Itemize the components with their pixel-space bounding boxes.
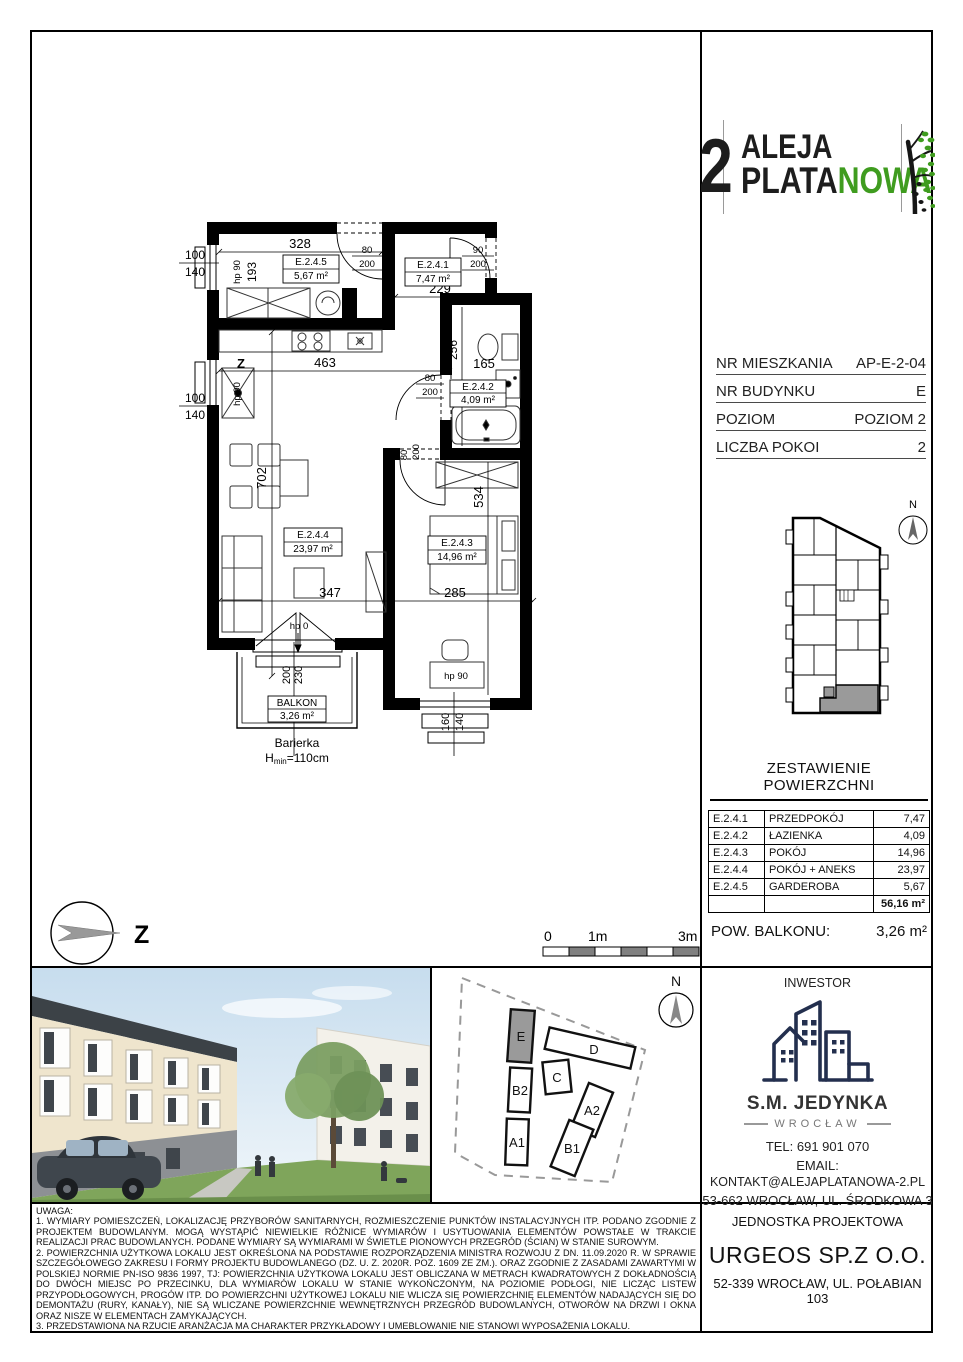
svg-text:100: 100: [185, 248, 205, 262]
svg-text:14,96 m²: 14,96 m²: [437, 552, 477, 563]
svg-text:E.2.4.3: E.2.4.3: [441, 538, 473, 549]
table-row: E.2.4.3 POKÓJ 14,96: [709, 845, 930, 862]
table-row: E.2.4.4 POKÓJ + ANEKS 23,97: [709, 862, 930, 879]
design-unit-address: 52-339 WROCŁAW, UL. POŁABIAN 103: [702, 1276, 933, 1306]
svg-text:200: 200: [411, 444, 422, 460]
svg-text:140: 140: [185, 408, 205, 422]
room-area: 7,47: [874, 811, 930, 828]
info-label: POZIOM: [716, 411, 775, 428]
note-2: 2. POWIERZCHNIA UŻYTKOWA LOKALU JEST OKR…: [36, 1248, 696, 1321]
room-label-lazienka: E.2.4.2 4,09 m²: [450, 380, 506, 407]
site-plan: E B2 A1 C D A2 B1 N: [432, 968, 698, 1200]
design-unit-name: URGEOS SP.Z O.O.: [702, 1242, 933, 1269]
info-value: E: [916, 383, 926, 400]
building-label-B1: B1: [564, 1141, 580, 1156]
room-label-garderoba: E.2.4.5 5,67 m²: [283, 255, 339, 283]
dining-set-icon: [230, 444, 308, 508]
info-row-nr-budynku: NR BUDYNKU E: [716, 376, 926, 403]
svg-text:100: 100: [185, 391, 205, 405]
logo-line2-black: PLATA: [741, 160, 838, 201]
room-area: 14,96: [874, 845, 930, 862]
investor-city: WROCŁAW: [774, 1118, 860, 1130]
siteplan-compass-icon: N: [659, 973, 693, 1027]
logo-number: 2: [699, 124, 733, 210]
svg-text:90: 90: [473, 245, 484, 256]
svg-text:328: 328: [289, 236, 311, 251]
minimap-compass-icon: N: [899, 499, 927, 544]
investor-city-row: WROCŁAW: [702, 1118, 933, 1130]
svg-text:200: 200: [359, 259, 375, 270]
note-1: 1. WYMIARY POMIESZCZEŃ, LOKALIZACJĘ PRZY…: [36, 1216, 696, 1247]
room-name: GARDEROBA: [765, 879, 874, 896]
balcony-area-row: POW. BALKONU: 3,26 m²: [708, 923, 930, 940]
balcony-area-value: 3,26 m²: [876, 923, 927, 940]
building-label-D: D: [589, 1042, 598, 1057]
area-summary-table: E.2.4.1 PRZEDPOKÓJ 7,47 E.2.4.2 ŁAZIENKA…: [708, 810, 930, 913]
room-area: 5,67: [874, 879, 930, 896]
floor-plan-sheet: 2 ALEJA PLATANOWA NR MIESZKANIA AP-E-2-0…: [0, 0, 963, 1362]
svg-text:Hmin=110cm: Hmin=110cm: [265, 751, 329, 766]
svg-text:285: 285: [444, 585, 466, 600]
notes-section: UWAGA: 1. WYMIARY POMIESZCZEŃ, LOKALIZAC…: [36, 1206, 696, 1331]
svg-text:200: 200: [422, 387, 438, 398]
svg-text:hp 90: hp 90: [232, 382, 243, 406]
room-area: 4,09: [874, 828, 930, 845]
investor-name: S.M. JEDYNKA: [702, 1093, 933, 1115]
room-area: 23,97: [874, 862, 930, 879]
sofa-icon: [222, 536, 262, 632]
apartment-floor-plan: 328 229 463 347 285 165 193 193 702 534 …: [30, 30, 700, 930]
logo-tree-icon: [899, 126, 935, 214]
svg-text:E.2.4.5: E.2.4.5: [295, 257, 327, 268]
building-label-E: E: [517, 1029, 526, 1044]
notes-title: UWAGA:: [36, 1206, 696, 1216]
washing-machine-icon: [316, 291, 340, 315]
svg-text:3m: 3m: [678, 928, 697, 944]
total-area: 56,16 m²: [874, 896, 930, 913]
svg-text:E.2.4.4: E.2.4.4: [297, 530, 329, 541]
design-unit-title: JEDNOSTKA PROJEKTOWA: [702, 1214, 933, 1229]
note-3: 3. PRZEDSTAWIONA NA RZUCIE ARANŻACJA MA …: [36, 1321, 696, 1331]
investor-phone: TEL: 691 901 070: [702, 1139, 933, 1154]
empty-cell: [709, 896, 765, 913]
svg-text:230: 230: [293, 666, 305, 684]
table-row-total: 56,16 m²: [709, 896, 930, 913]
siteplan-north-letter: N: [671, 973, 681, 989]
dash-right: [867, 1123, 891, 1125]
investor-section: INWESTOR S.M. JEDYNKA W: [702, 972, 933, 1208]
room-name: PRZEDPOKÓJ: [765, 811, 874, 828]
area-summary: ZESTAWIENIE POWIERZCHNI E.2.4.1 PRZEDPOK…: [708, 760, 930, 940]
svg-text:80: 80: [399, 450, 410, 461]
plan-walls: [207, 222, 532, 710]
building-label-C: C: [552, 1070, 561, 1085]
info-row-liczba-pokoi: LICZBA POKOI 2: [716, 432, 926, 459]
area-summary-title: ZESTAWIENIE POWIERZCHNI: [710, 760, 928, 801]
empty-cell: [765, 896, 874, 913]
room-code: E.2.4.2: [709, 828, 765, 845]
svg-text:hp 90: hp 90: [444, 671, 468, 682]
wardrobe-icon: [227, 288, 310, 318]
svg-text:256: 256: [446, 340, 460, 360]
investor-logo-buildings-icon: [756, 992, 880, 1086]
info-value: AP-E-2-04: [856, 355, 926, 372]
investor-title: INWESTOR: [702, 976, 933, 990]
table-row: E.2.4.2 ŁAZIENKA 4,09: [709, 828, 930, 845]
kitchen-counter: [219, 330, 382, 352]
svg-text:347: 347: [319, 585, 341, 600]
svg-text:193: 193: [245, 262, 259, 282]
scale-bar: 0 1m 3m: [538, 928, 706, 966]
svg-text:4,09 m²: 4,09 m²: [461, 395, 496, 406]
svg-text:80: 80: [362, 245, 373, 256]
room-name: ŁAZIENKA: [765, 828, 874, 845]
building-label-A2: A2: [584, 1103, 600, 1118]
table-row: E.2.4.5 GARDEROBA 5,67: [709, 879, 930, 896]
investor-email-label: EMAIL:: [702, 1158, 933, 1173]
svg-text:7,47 m²: 7,47 m²: [416, 274, 451, 285]
building-label-A1: A1: [509, 1135, 525, 1150]
apartment-info-table: NR MIESZKANIA AP-E-2-04 NR BUDYNKU E POZ…: [716, 348, 926, 460]
svg-text:534: 534: [471, 486, 486, 508]
room-code: E.2.4.3: [709, 845, 765, 862]
svg-text:165: 165: [473, 356, 495, 371]
svg-text:N: N: [909, 499, 917, 511]
svg-text:200: 200: [281, 666, 293, 684]
dash-left: [744, 1123, 768, 1125]
svg-text:0: 0: [544, 928, 552, 944]
svg-text:463: 463: [314, 355, 336, 370]
svg-text:140: 140: [185, 265, 205, 279]
svg-text:E.2.4.1: E.2.4.1: [417, 260, 449, 271]
svg-text:140: 140: [454, 713, 466, 731]
room-code: E.2.4.5: [709, 879, 765, 896]
room-label-przedpokoj: E.2.4.1 7,47 m²: [405, 258, 461, 286]
info-row-poziom: POZIOM POZIOM 2: [716, 404, 926, 431]
building-photo: [32, 968, 430, 1202]
design-unit-section: JEDNOSTKA PROJEKTOWA URGEOS SP.Z O.O. 52…: [702, 1206, 933, 1306]
room-label-balkon: BALKON 3,26 m²: [268, 696, 326, 722]
svg-text:hp 0: hp 0: [290, 621, 309, 632]
svg-text:160: 160: [440, 713, 452, 731]
info-row-nr-mieszkania: NR MIESZKANIA AP-E-2-04: [716, 348, 926, 375]
svg-text:3,26 m²: 3,26 m²: [280, 711, 315, 722]
svg-text:23,97 m²: 23,97 m²: [293, 544, 333, 555]
svg-text:Barierka: Barierka: [275, 736, 320, 750]
building-label-B2: B2: [512, 1083, 528, 1098]
table-row: E.2.4.1 PRZEDPOKÓJ 7,47: [709, 811, 930, 828]
room-code: E.2.4.4: [709, 862, 765, 879]
barrier-caption: Barierka Hmin=110cm: [265, 736, 329, 766]
building-floor-minimap: N: [760, 490, 935, 760]
room-name: POKÓJ + ANEKS: [765, 862, 874, 879]
investor-email: KONTAKT@ALEJAPLATANOWA-2.PL: [702, 1175, 933, 1189]
room-code: E.2.4.1: [709, 811, 765, 828]
balcony-door-symbol: [256, 613, 340, 652]
info-label: NR BUDYNKU: [716, 383, 815, 400]
balcony-area-label: POW. BALKONU:: [711, 923, 830, 940]
svg-text:E.2.4.2: E.2.4.2: [462, 382, 494, 393]
info-label: NR MIESZKANIA: [716, 355, 833, 372]
info-value: POZIOM 2: [854, 411, 926, 428]
svg-text:5,67 m²: 5,67 m²: [294, 271, 329, 282]
room-label-pokoj-aneks: E.2.4.4 23,97 m²: [284, 528, 342, 556]
svg-text:1m: 1m: [588, 928, 607, 944]
stove-icon: [292, 331, 330, 351]
svg-text:702: 702: [254, 467, 269, 489]
info-label: LICZBA POKOI: [716, 439, 819, 456]
info-value: 2: [918, 439, 926, 456]
room-name: POKÓJ: [765, 845, 874, 862]
plan-north-letter-small: Z: [237, 356, 245, 371]
room-label-pokoj: E.2.4.3 14,96 m²: [428, 536, 486, 564]
svg-text:hp 90: hp 90: [232, 260, 243, 284]
svg-text:200: 200: [470, 259, 486, 270]
svg-text:80: 80: [425, 373, 436, 384]
svg-text:BALKON: BALKON: [277, 698, 318, 709]
bedroom-wardrobe-icon: [436, 462, 518, 488]
